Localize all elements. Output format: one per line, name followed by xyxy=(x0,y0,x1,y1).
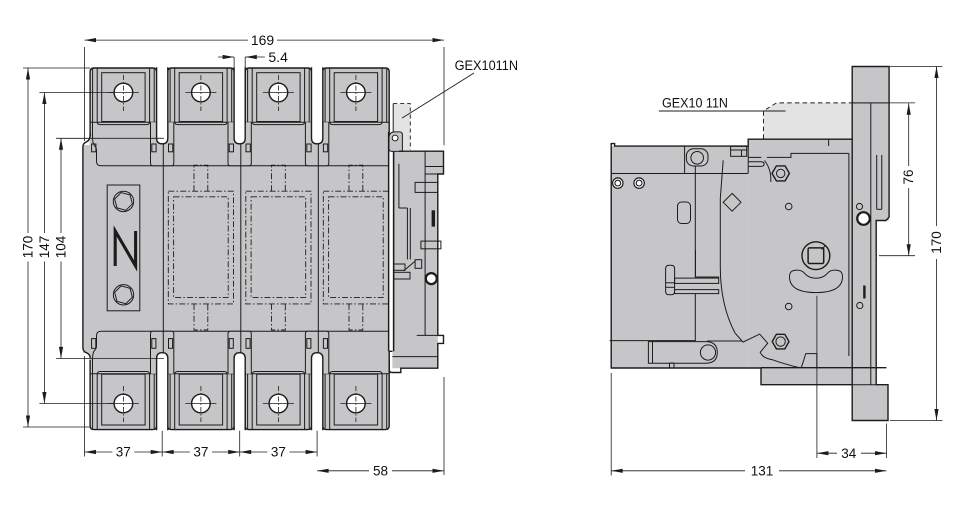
svg-text:104: 104 xyxy=(54,235,69,258)
svg-text:147: 147 xyxy=(37,236,52,259)
svg-text:169: 169 xyxy=(251,32,275,48)
svg-text:37: 37 xyxy=(271,445,286,460)
svg-text:GEX1011N: GEX1011N xyxy=(455,58,518,73)
svg-text:76: 76 xyxy=(901,169,916,184)
svg-text:34: 34 xyxy=(841,446,857,461)
svg-text:131: 131 xyxy=(751,464,774,479)
svg-text:5.4: 5.4 xyxy=(268,49,288,65)
svg-text:37: 37 xyxy=(116,445,131,460)
svg-text:170: 170 xyxy=(929,231,944,254)
svg-text:58: 58 xyxy=(373,464,388,479)
svg-text:37: 37 xyxy=(193,445,208,460)
svg-text:170: 170 xyxy=(21,236,36,259)
svg-text:GEX10 11N: GEX10 11N xyxy=(662,96,728,111)
